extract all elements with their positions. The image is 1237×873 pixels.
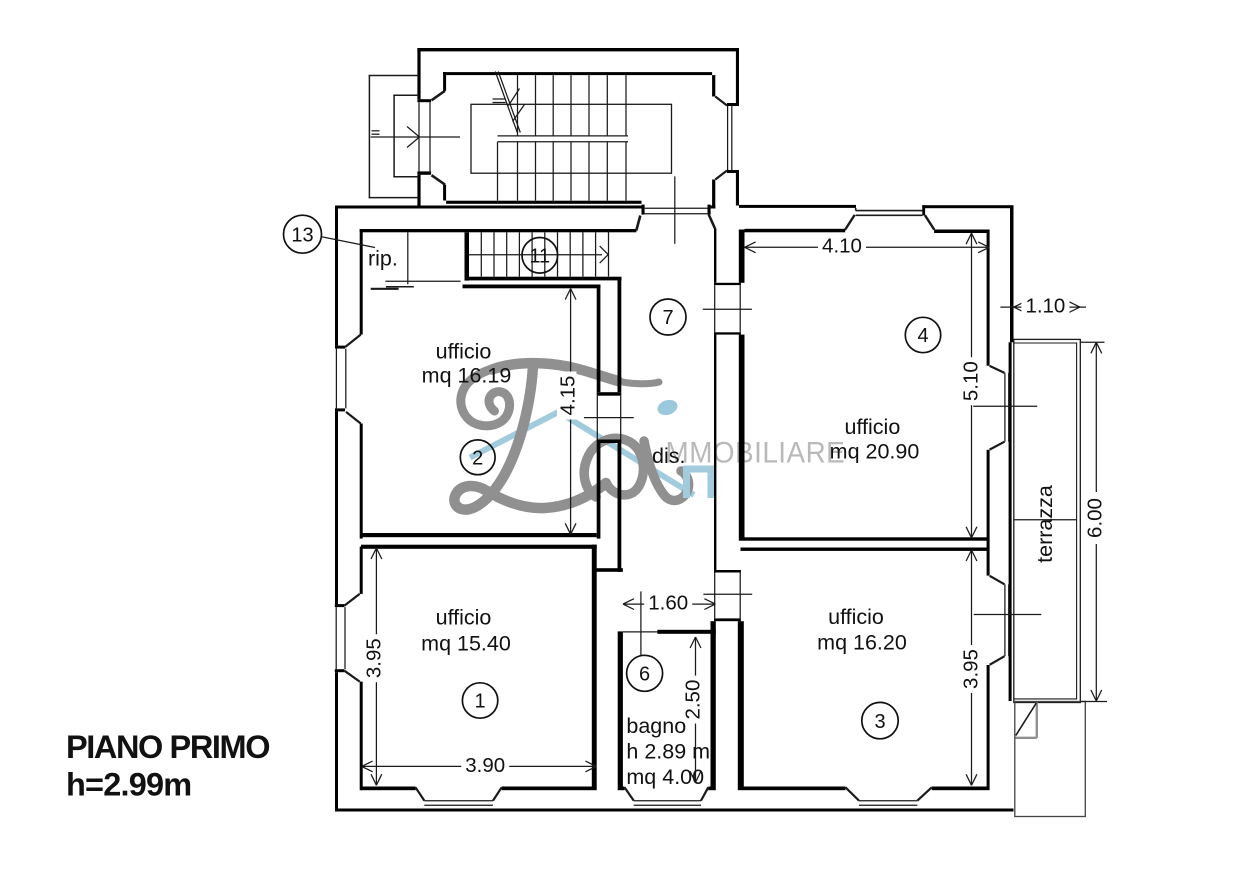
svg-text:MMOBILIARE: MMOBILIARE [666, 437, 846, 470]
svg-text:2: 2 [472, 448, 483, 470]
svg-text:5.10: 5.10 [960, 361, 983, 401]
svg-text:3.95: 3.95 [960, 649, 983, 689]
svg-text:mq 4.00: mq 4.00 [626, 765, 704, 789]
svg-text:4.10: 4.10 [822, 235, 862, 258]
svg-text:h=2.99m: h=2.99m [66, 767, 191, 803]
svg-text:11: 11 [529, 246, 550, 268]
svg-text:dis.: dis. [652, 444, 685, 468]
svg-text:mq 15.40: mq 15.40 [421, 632, 511, 656]
svg-text:3.95: 3.95 [363, 638, 386, 678]
svg-text:ufficio: ufficio [436, 340, 492, 364]
svg-text:h 2.89 m: h 2.89 m [626, 739, 710, 763]
svg-text:13: 13 [291, 225, 313, 247]
svg-text:mq 16.20: mq 16.20 [817, 631, 907, 655]
svg-text:1: 1 [475, 691, 486, 713]
svg-text:4.15: 4.15 [557, 376, 580, 416]
svg-text:6.00: 6.00 [1084, 498, 1107, 538]
svg-text:ufficio: ufficio [436, 606, 492, 630]
svg-text:bagno: bagno [626, 714, 686, 738]
svg-text:1.60: 1.60 [648, 591, 688, 614]
svg-text:4: 4 [917, 325, 928, 347]
svg-text:terrazza: terrazza [1033, 485, 1057, 563]
svg-text:6: 6 [639, 664, 650, 686]
svg-text:ufficio: ufficio [828, 605, 884, 629]
svg-text:ufficio: ufficio [845, 415, 901, 439]
svg-text:rip.: rip. [368, 247, 398, 271]
svg-text:3: 3 [874, 711, 885, 733]
svg-text:PIANO PRIMO: PIANO PRIMO [66, 729, 269, 765]
svg-text:mq 16.19: mq 16.19 [422, 364, 512, 388]
svg-text:3.90: 3.90 [465, 754, 505, 777]
svg-text:1.10: 1.10 [1025, 294, 1065, 317]
svg-text:7: 7 [662, 307, 673, 329]
svg-text:mq 20.90: mq 20.90 [830, 440, 920, 464]
